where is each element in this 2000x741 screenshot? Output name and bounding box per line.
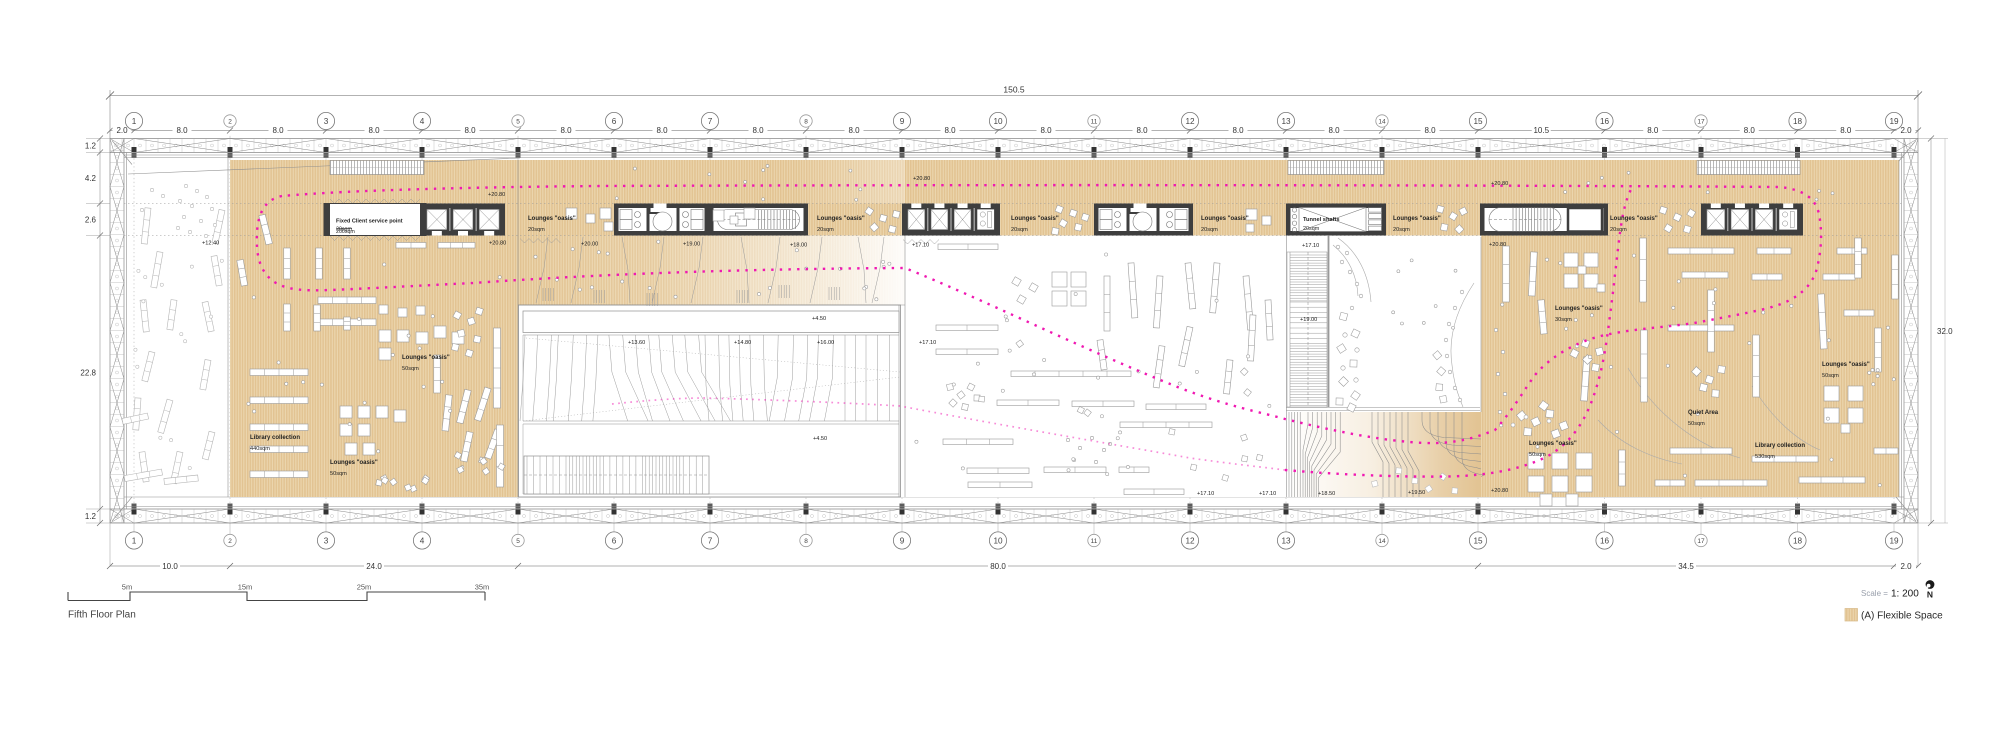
svg-text:20sqm: 20sqm [1201,227,1218,233]
svg-text:32.0: 32.0 [1937,327,1953,336]
svg-text:8.0: 8.0 [944,126,956,135]
svg-text:80.0: 80.0 [990,562,1006,571]
svg-text:10.5: 10.5 [1533,126,1549,135]
svg-text:200sqm: 200sqm [336,229,355,235]
svg-text:35m: 35m [475,583,490,592]
svg-text:+20.80: +20.80 [489,241,506,247]
svg-text:Scale =: Scale = [1861,589,1888,598]
svg-text:+13.60: +13.60 [628,340,645,346]
svg-text:13: 13 [1281,536,1291,545]
svg-text:1: 1 [132,536,137,545]
svg-text:+20.80: +20.80 [913,176,930,182]
svg-text:4: 4 [420,536,425,545]
svg-text:+20.80: +20.80 [488,192,505,198]
svg-text:Library collection: Library collection [1755,443,1805,449]
svg-text:15: 15 [1473,536,1483,545]
svg-text:7: 7 [708,117,713,126]
svg-text:+19.00: +19.00 [683,242,700,248]
svg-text:19: 19 [1889,536,1899,545]
svg-text:8.0: 8.0 [1840,126,1852,135]
svg-text:+17.10: +17.10 [912,243,929,249]
svg-text:2.6: 2.6 [85,216,97,225]
svg-text:+17.10: +17.10 [1259,491,1276,497]
svg-text:2.0: 2.0 [116,126,128,135]
svg-text:2.0: 2.0 [1900,562,1912,571]
svg-text:+19.00: +19.00 [1300,317,1317,323]
svg-text:1: 200: 1: 200 [1891,589,1919,600]
svg-text:8.0: 8.0 [752,126,764,135]
svg-text:15: 15 [1473,117,1483,126]
svg-text:22.8: 22.8 [80,368,96,377]
svg-text:Lounges "oasis": Lounges "oasis" [1555,306,1603,312]
svg-text:25m: 25m [357,583,372,592]
svg-text:Lounges "oasis": Lounges "oasis" [1011,216,1059,222]
svg-text:3: 3 [324,536,329,545]
svg-text:+18.50: +18.50 [1318,491,1335,497]
svg-text:2.0: 2.0 [1900,126,1912,135]
svg-text:Lounges "oasis": Lounges "oasis" [1529,441,1577,447]
svg-text:20sqm: 20sqm [1610,227,1627,233]
svg-text:+4.50: +4.50 [812,316,826,322]
svg-text:Lounges "oasis": Lounges "oasis" [1393,216,1441,222]
svg-text:+20.00: +20.00 [581,242,598,248]
svg-text:+14.80: +14.80 [734,340,751,346]
svg-text:Quiet Area: Quiet Area [1688,410,1719,416]
svg-text:+12.40: +12.40 [202,241,219,247]
svg-text:12: 12 [1185,117,1195,126]
svg-text:440sqm: 440sqm [250,446,270,452]
svg-text:8.0: 8.0 [1744,126,1756,135]
svg-text:8.0: 8.0 [1232,126,1244,135]
svg-text:11: 11 [1091,118,1098,125]
svg-text:+17.10: +17.10 [1302,243,1319,249]
svg-text:8.0: 8.0 [1424,126,1436,135]
svg-text:34.5: 34.5 [1678,562,1694,571]
svg-text:17: 17 [1697,118,1705,125]
svg-text:6: 6 [612,536,617,545]
svg-text:9: 9 [900,536,905,545]
svg-text:50sqm: 50sqm [402,366,419,372]
svg-text:10: 10 [993,536,1003,545]
svg-text:13: 13 [1281,117,1291,126]
svg-text:4: 4 [420,117,425,126]
svg-text:8.0: 8.0 [1040,126,1052,135]
svg-text:16: 16 [1600,117,1610,126]
svg-text:Library collection: Library collection [250,435,300,441]
svg-text:2: 2 [228,118,232,125]
svg-text:8.0: 8.0 [368,126,380,135]
svg-text:4.2: 4.2 [85,174,97,183]
svg-text:Lounges "oasis": Lounges "oasis" [1201,216,1249,222]
svg-text:19: 19 [1889,117,1899,126]
svg-text:16: 16 [1600,536,1610,545]
svg-text:8.0: 8.0 [464,126,476,135]
svg-text:+16.00: +16.00 [817,340,834,346]
svg-text:Lounges "oasis": Lounges "oasis" [1822,362,1870,368]
svg-text:6: 6 [612,117,617,126]
svg-text:1.2: 1.2 [85,512,97,521]
svg-text:Lounges "oasis": Lounges "oasis" [817,216,865,222]
svg-text:+20.80: +20.80 [1491,181,1508,187]
svg-text:18: 18 [1793,536,1803,545]
svg-text:530sqm: 530sqm [1755,454,1775,460]
svg-text:15m: 15m [238,583,253,592]
svg-text:8.0: 8.0 [1328,126,1340,135]
svg-text:Tunnel shafts: Tunnel shafts [1303,217,1340,223]
svg-text:3: 3 [324,117,329,126]
svg-text:50sqm: 50sqm [330,471,347,477]
svg-text:5: 5 [516,538,520,545]
svg-text:17: 17 [1697,538,1705,545]
svg-text:20sqm: 20sqm [1393,227,1410,233]
svg-text:2: 2 [228,538,232,545]
svg-text:+4.50: +4.50 [813,436,827,442]
svg-text:+18.00: +18.00 [790,243,807,249]
svg-text:Lounges "oasis": Lounges "oasis" [1610,216,1658,222]
svg-text:18: 18 [1793,117,1803,126]
svg-text:8.0: 8.0 [176,126,188,135]
svg-text:8.0: 8.0 [1136,126,1148,135]
svg-text:20sqm: 20sqm [1303,226,1320,232]
svg-text:+17.10: +17.10 [919,340,936,346]
svg-text:20sqm: 20sqm [817,227,834,233]
svg-text:Fifth Floor Plan: Fifth Floor Plan [68,610,136,621]
svg-text:8.0: 8.0 [272,126,284,135]
svg-text:+20.80: +20.80 [1491,488,1508,494]
svg-text:50sqm: 50sqm [1688,421,1705,427]
svg-text:1: 1 [132,117,137,126]
svg-text:1.2: 1.2 [85,142,97,151]
svg-text:Lounges "oasis": Lounges "oasis" [528,216,576,222]
svg-text:8.0: 8.0 [1647,126,1659,135]
svg-text:Fixed Client service point: Fixed Client service point [336,219,403,225]
svg-text:12: 12 [1185,536,1195,545]
svg-text:30sqm: 30sqm [1555,317,1572,323]
svg-text:10.0: 10.0 [162,562,178,571]
svg-text:(A) Flexible Space: (A) Flexible Space [1861,611,1943,622]
svg-text:8: 8 [804,538,808,545]
svg-text:8.0: 8.0 [848,126,860,135]
svg-text:Lounges "oasis": Lounges "oasis" [402,355,450,361]
svg-text:+20.80: +20.80 [1489,242,1506,248]
svg-text:+17.10: +17.10 [1197,491,1214,497]
svg-text:11: 11 [1091,538,1098,545]
svg-text:8.0: 8.0 [560,126,572,135]
svg-text:20sqm: 20sqm [528,227,545,233]
svg-text:150.5: 150.5 [1003,85,1025,95]
svg-text:+19.50: +19.50 [1408,490,1425,496]
svg-text:N: N [1927,590,1933,600]
svg-text:7: 7 [708,536,713,545]
svg-text:5m: 5m [122,583,132,592]
svg-text:8: 8 [804,118,808,125]
svg-text:50sqm: 50sqm [1822,373,1839,379]
svg-text:24.0: 24.0 [366,562,382,571]
svg-text:14: 14 [1378,118,1386,125]
svg-text:10: 10 [993,117,1003,126]
svg-text:14: 14 [1378,538,1386,545]
svg-text:8.0: 8.0 [656,126,668,135]
svg-text:9: 9 [900,117,905,126]
svg-text:5: 5 [516,118,520,125]
svg-text:20sqm: 20sqm [1011,227,1028,233]
svg-text:50sqm: 50sqm [1529,452,1546,458]
svg-text:Lounges "oasis": Lounges "oasis" [330,460,378,466]
